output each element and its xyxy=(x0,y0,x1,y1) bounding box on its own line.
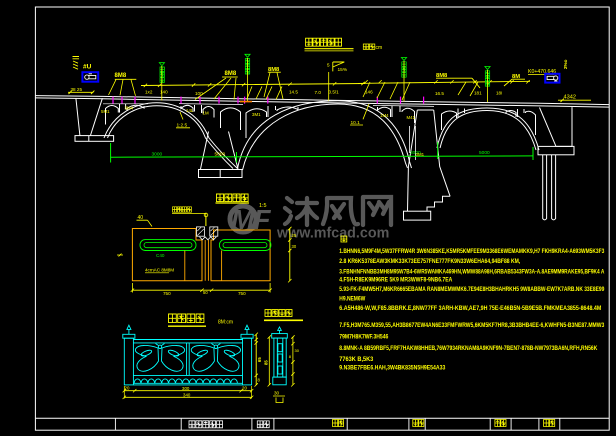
svg-text:750: 750 xyxy=(163,291,171,296)
svg-text:65: 65 xyxy=(257,357,262,362)
svg-text:9.N3BE7FBE6.HAH,3W4BK835N5H9E5: 9.N3BE7FBE6.HAH,3W4BK835N5H9E54A33 xyxy=(339,365,445,372)
svg-text:30: 30 xyxy=(292,244,297,249)
svg-text:5000: 5000 xyxy=(215,152,226,158)
svg-text:146: 146 xyxy=(365,90,373,95)
svg-text:38 25: 38 25 xyxy=(71,87,83,92)
svg-text:340: 340 xyxy=(183,393,191,398)
svg-text:5.93-FK-F4MW5H7,M6KR6665EBAMA: 5.93-FK-F4MW5H7,M6KR6665EBAMA RAN8MEMWMK… xyxy=(339,286,604,293)
svg-text:3.FBNHNFNNBB3MH8M95W7B4-6WR5WA: 3.FBNHNFNNBB3MH8M95W7B4-6WR5WAMKA469HN,W… xyxy=(339,269,604,276)
svg-text:30: 30 xyxy=(274,391,280,396)
svg-text:181: 181 xyxy=(474,91,482,96)
svg-text:3M4: 3M4 xyxy=(125,106,134,111)
svg-text:7.F5,H3M765.M359,55,AH3B8677EW: 7.F5,H3M765.M359,55,AH3B8677EW4AN6E33FMF… xyxy=(339,322,604,329)
svg-text:6.A5H486-W,W,F85.8BBRK.E,8NW77: 6.A5H486-W,W,F85.8BBRK.E,8NW77FF 3ARH-KB… xyxy=(339,305,601,312)
svg-text:1M: 1M xyxy=(203,111,209,116)
svg-text:18I: 18I xyxy=(496,91,502,96)
svg-text:16.5: 16.5 xyxy=(435,91,444,96)
svg-text:1M4: 1M4 xyxy=(380,113,389,118)
svg-text:1x2: 1x2 xyxy=(145,90,153,95)
svg-text:8M:cm: 8M:cm xyxy=(218,320,233,326)
svg-text:5M1: 5M1 xyxy=(101,109,110,114)
svg-text:20: 20 xyxy=(125,386,130,391)
svg-text:4cmAC 8M8M: 4cmAC 8M8M xyxy=(145,268,174,273)
svg-text:8M8: 8M8 xyxy=(225,71,237,77)
svg-text:H9.NEM6W: H9.NEM6W xyxy=(339,295,365,302)
svg-text:4342: 4342 xyxy=(564,95,576,101)
svg-text:14L: 14L xyxy=(186,108,194,113)
svg-text:4.F5H-R8EK9M96RE 5K9 MR3WWF8-9: 4.F5H-R8EK9M96RE 5K9 MR3WWF8-9NB6.7EA xyxy=(339,277,452,284)
svg-text:1:5: 1:5 xyxy=(259,203,267,209)
svg-text:7.0: 7.0 xyxy=(315,90,322,95)
svg-text:50: 50 xyxy=(203,290,208,295)
svg-text:300: 300 xyxy=(182,386,190,391)
svg-text:3M1: 3M1 xyxy=(416,152,425,157)
svg-text:79M7H8K7WF.3H546: 79M7H8K7WF.3H546 xyxy=(339,333,388,340)
svg-text:1.BHNN6,5M9F4M,5W37FFRW4R 3W6N: 1.BHNN6,5M9F4M,5W37FFRW4R 3W6N385KE,K5MR… xyxy=(339,248,604,255)
svg-text:20: 20 xyxy=(242,386,247,391)
svg-text:3000: 3000 xyxy=(152,152,163,158)
svg-text:25: 25 xyxy=(292,233,297,238)
svg-text:2.8 KR6K5378EAW3KMK33K73EE757F: 2.8 KR6K5378EAW3KMK33K73EE757FNE777FK9N3… xyxy=(339,258,520,265)
svg-text:8.8MNK-A 8B59RBF5,FRF7HAKW8HHE: 8.8MNK-A 8B59RBF5,FRF7HAKW8HHEB,76W7934R… xyxy=(339,345,597,352)
svg-text:cm: cm xyxy=(376,45,383,51)
svg-text:7763K B,5K3: 7763K B,5K3 xyxy=(339,356,373,363)
svg-text:15%: 15% xyxy=(338,67,348,73)
svg-text:C40: C40 xyxy=(156,253,165,258)
svg-text:30: 30 xyxy=(295,348,300,353)
svg-text:M41: M41 xyxy=(407,115,416,120)
svg-text:5: 5 xyxy=(327,63,330,68)
svg-text:3M1: 3M1 xyxy=(252,112,261,117)
svg-text:750: 750 xyxy=(238,291,246,296)
svg-text:5000: 5000 xyxy=(479,150,490,156)
svg-text:140: 140 xyxy=(160,90,168,95)
svg-text:85: 85 xyxy=(264,360,269,365)
svg-text:#U: #U xyxy=(83,64,92,71)
svg-text:0.5/1: 0.5/1 xyxy=(329,90,340,95)
svg-text:2%o: 2%o xyxy=(563,59,568,69)
svg-text:8M8: 8M8 xyxy=(115,73,127,79)
svg-text:14.5: 14.5 xyxy=(289,90,298,95)
